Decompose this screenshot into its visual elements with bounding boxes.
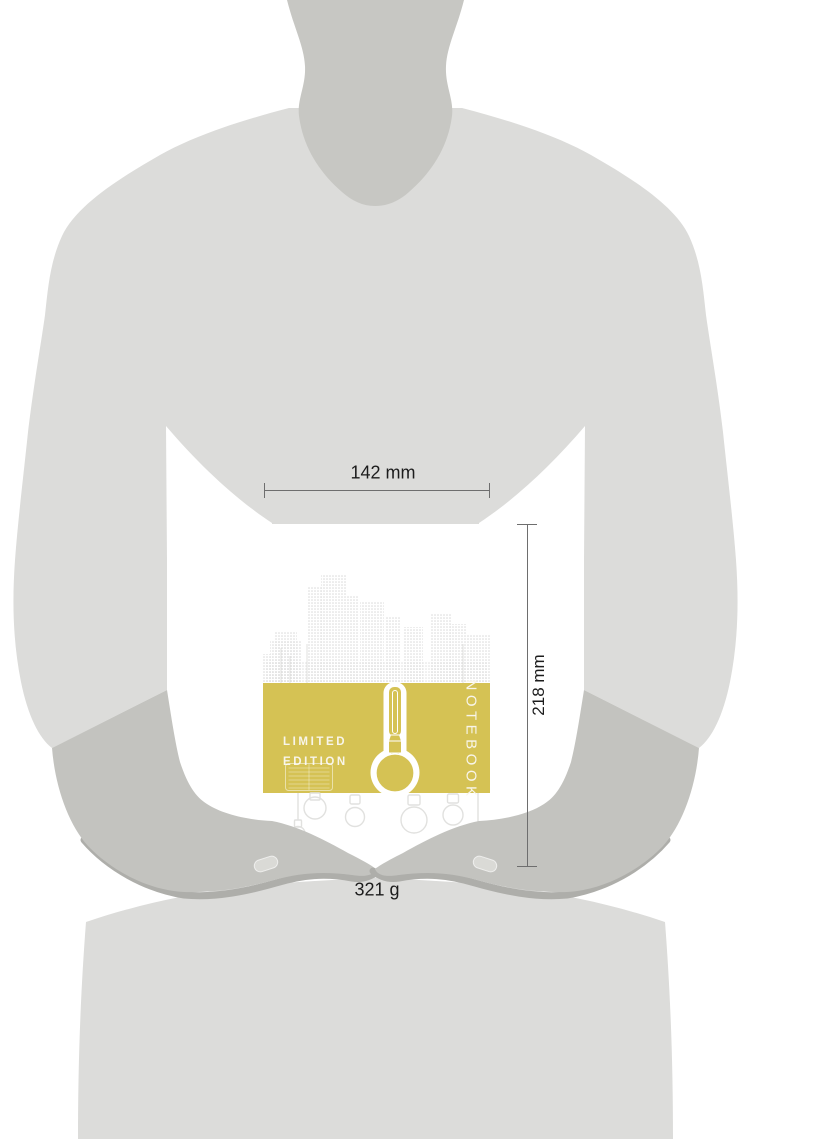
width-tick-right	[489, 483, 490, 498]
height-tick-bottom	[517, 866, 537, 867]
right-forearm-hand	[373, 690, 699, 896]
height-dimension-line	[527, 524, 528, 866]
left-forearm-hand	[52, 690, 378, 896]
hands-layer	[0, 0, 820, 1139]
width-dimension-label: 142 mm	[350, 463, 415, 484]
product-size-illustration: LIMITEDEDITION NOTEBOOK	[0, 0, 820, 1139]
width-tick-left	[264, 483, 265, 498]
weight-label: 321 g	[354, 880, 399, 901]
height-dimension-label: 218 mm	[529, 654, 549, 715]
height-tick-top	[517, 524, 537, 525]
width-dimension-line	[264, 490, 490, 491]
